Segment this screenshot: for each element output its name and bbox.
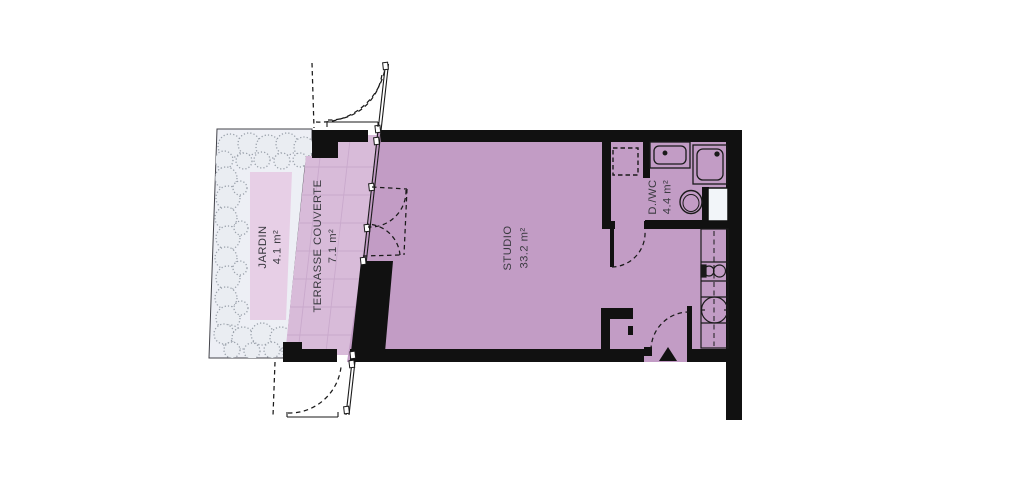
exterior-shutter-top-icon [312, 63, 385, 128]
duct-shaft-icon [708, 188, 728, 221]
hedge-bush-icon [254, 152, 270, 168]
hedge-bush-icon [233, 261, 247, 275]
hedge-bush-icon [215, 287, 237, 309]
label-jardin-area: 4.1 m² [272, 230, 284, 264]
hedge-bush-icon [251, 323, 273, 345]
hedge-bush-icon [293, 153, 307, 167]
label-dwc-name: D./WC [647, 179, 659, 214]
hedge-bush-icon [215, 207, 237, 229]
exterior-shutter-bottom-icon [273, 362, 341, 417]
hedge-bush-icon [274, 153, 290, 169]
label-studio-name: STUDIO [502, 226, 514, 271]
label-terrasse-area: 7.1 m² [327, 229, 339, 263]
label-dwc-area: 4.4 m² [662, 180, 674, 214]
label-jardin-name: JARDIN [257, 225, 269, 268]
floor-plan-page: JARDIN 4.1 m² TERRASSE COUVERTE 7.1 m² S… [0, 0, 1029, 504]
hedge-bush-icon [236, 153, 252, 169]
entrance-door-leaf [687, 306, 692, 351]
label-terrasse-name: TERRASSE COUVERTE [312, 179, 324, 312]
hedge-bush-icon [234, 301, 248, 315]
room-studio-floor [347, 130, 742, 362]
hedge-bush-icon [224, 342, 240, 358]
floor-plan-canvas: JARDIN 4.1 m² TERRASSE COUVERTE 7.1 m² S… [0, 0, 1029, 504]
hedge-bush-icon [244, 343, 260, 359]
hedge-bush-icon [214, 324, 234, 344]
hedge-bush-icon [264, 342, 280, 358]
label-studio-area: 33.2 m² [519, 227, 531, 268]
hedge-bush-icon [215, 151, 233, 169]
dwc-door-leaf [610, 229, 614, 267]
hedge-bush-icon [234, 221, 248, 235]
hedge-bush-icon [233, 181, 247, 195]
